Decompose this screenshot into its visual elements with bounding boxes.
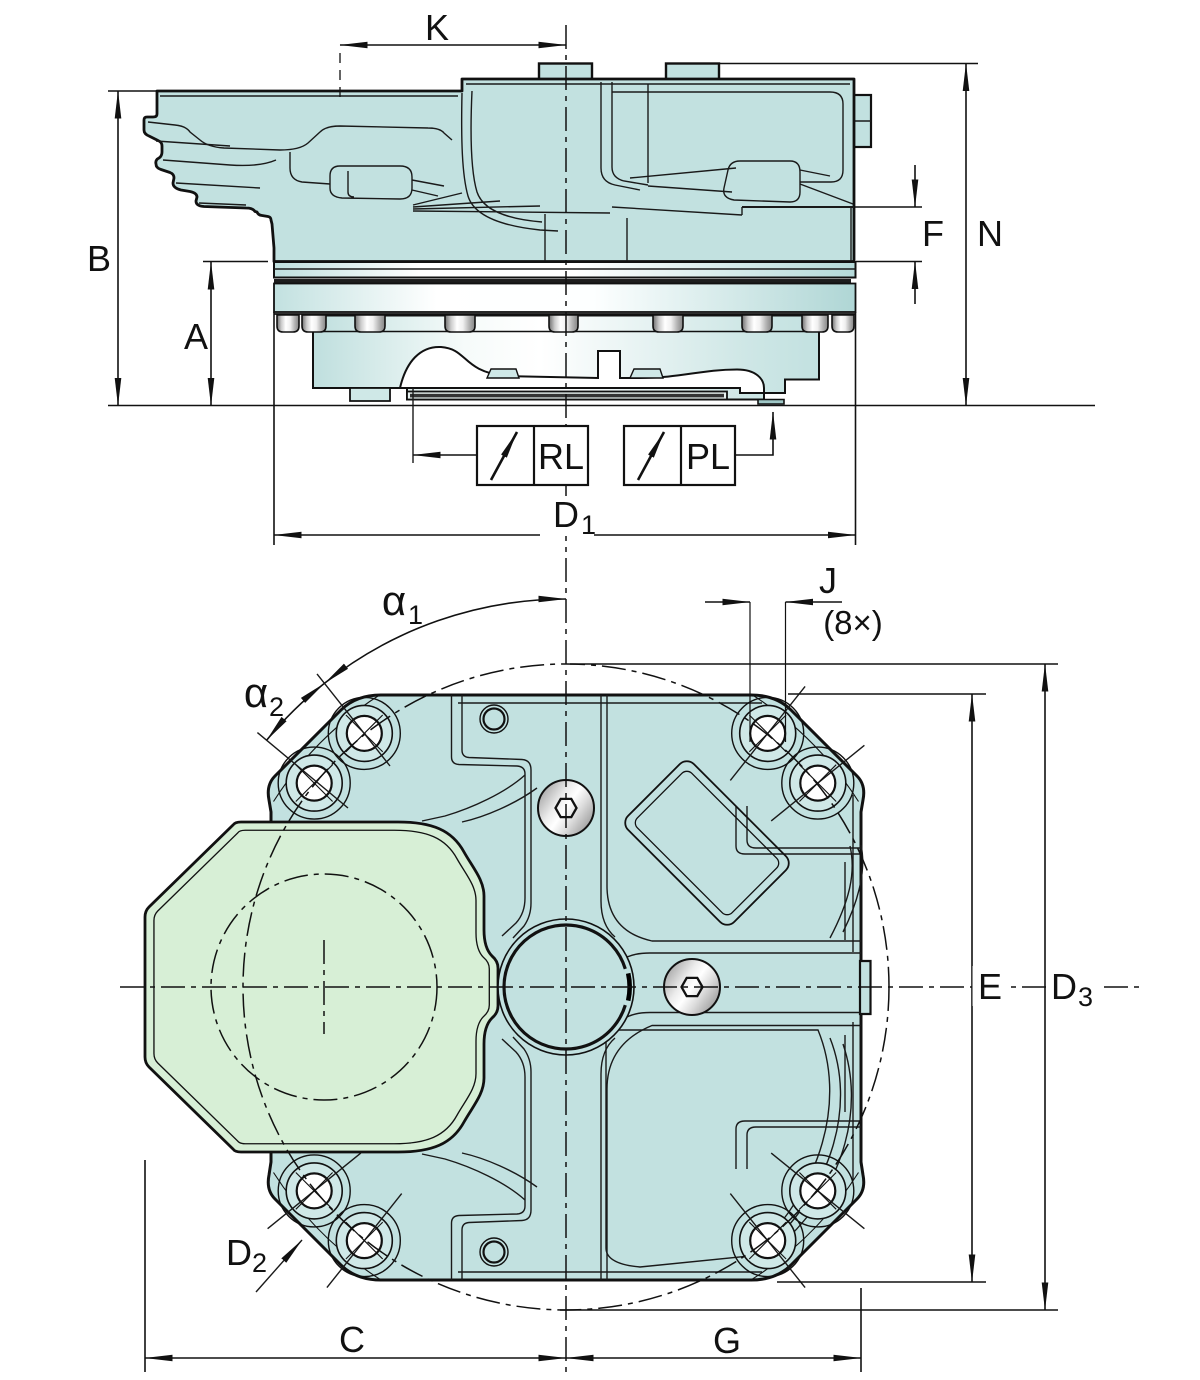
svg-text:D: D — [226, 1232, 252, 1273]
svg-text:G: G — [713, 1320, 741, 1361]
svg-text:α: α — [382, 577, 406, 624]
svg-text:A: A — [184, 316, 208, 357]
svg-text:J: J — [819, 560, 837, 601]
svg-text:(8×): (8×) — [823, 604, 883, 641]
svg-text:RL: RL — [538, 436, 584, 477]
svg-text:E: E — [978, 966, 1002, 1007]
svg-text:K: K — [425, 7, 449, 48]
svg-text:α: α — [244, 669, 268, 716]
svg-text:C: C — [339, 1319, 365, 1360]
svg-text:D: D — [553, 494, 579, 535]
svg-text:3: 3 — [1078, 982, 1093, 1012]
svg-text:B: B — [87, 238, 111, 279]
svg-text:1: 1 — [408, 600, 423, 630]
svg-text:PL: PL — [686, 436, 730, 477]
svg-text:F: F — [922, 213, 944, 254]
svg-text:1: 1 — [581, 510, 596, 540]
svg-text:N: N — [977, 213, 1003, 254]
svg-text:2: 2 — [252, 1248, 267, 1278]
svg-text:2: 2 — [269, 692, 284, 722]
svg-text:D: D — [1051, 966, 1077, 1007]
